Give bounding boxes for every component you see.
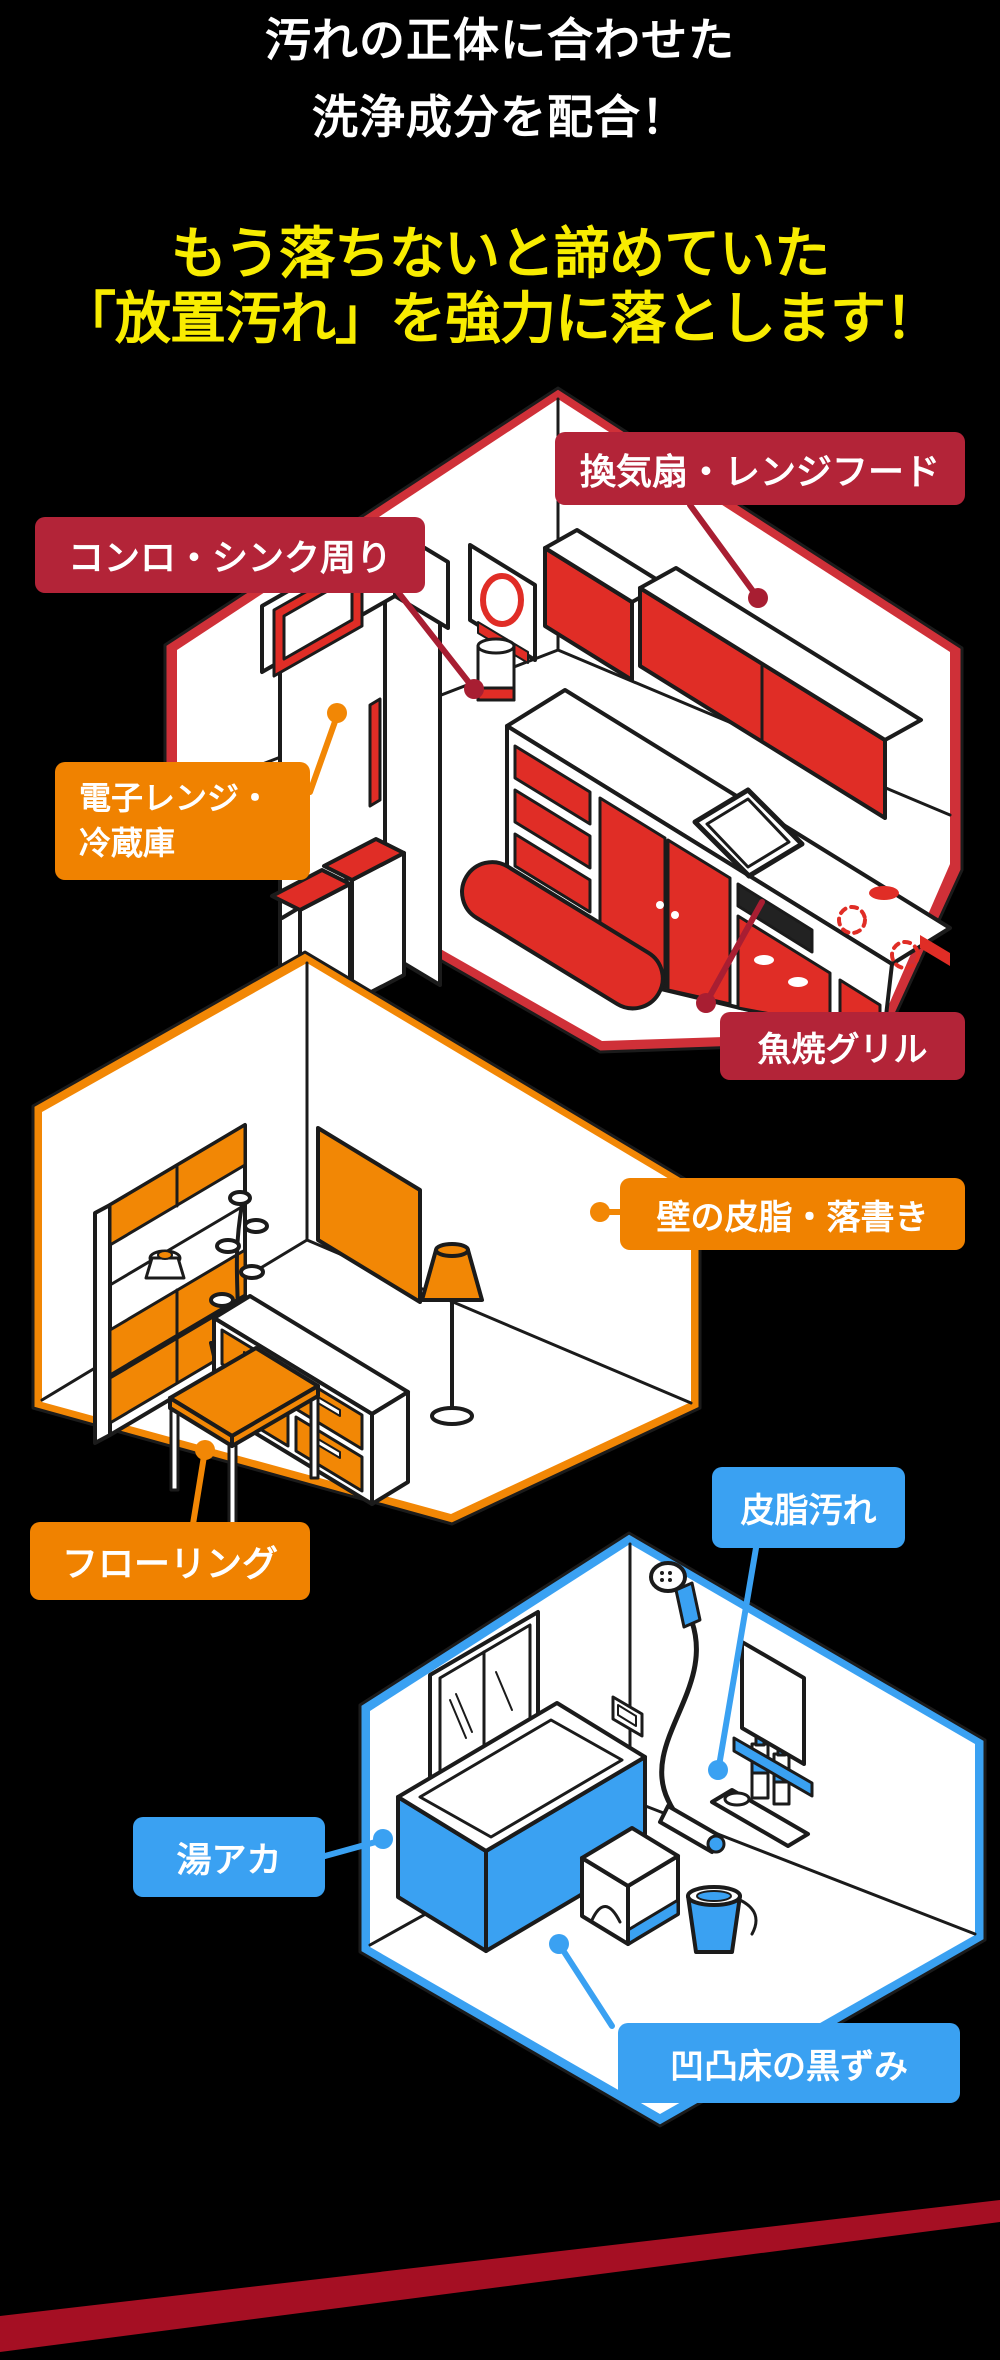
leader-stove-dot: [464, 679, 484, 699]
leader-fridge-dot: [327, 703, 347, 723]
callout-bathtub-scum: 湯アカ: [133, 1817, 325, 1897]
callout-microwave-fridge: 電子レンジ・ 冷蔵庫: [55, 762, 310, 880]
leader-yuaka-dot: [373, 1829, 393, 1849]
leader-uneven-dot: [549, 1934, 569, 1954]
callout-vent-fan-range-hood: 換気扇・レンジフード: [555, 432, 965, 505]
callout-wall-sebum-graffiti: 壁の皮脂・落書き: [620, 1178, 965, 1250]
callout-uneven-floor-stains: 凹凸床の黒ずみ: [618, 2023, 960, 2103]
callout-flooring: フローリング: [30, 1522, 310, 1600]
leader-wall-dot: [590, 1202, 610, 1222]
leader-sebum-dot: [708, 1760, 728, 1780]
callout-stove-sink-area: コンロ・シンク周り: [35, 517, 425, 593]
callout-fish-grill: 魚焼グリル: [720, 1012, 965, 1080]
callout-sebum-dirt: 皮脂汚れ: [712, 1467, 905, 1548]
infographic-canvas: 汚れの正体に合わせた 洗浄成分を配合！ もう落ちないと諦めていた 「放置汚れ」を…: [0, 0, 1000, 2360]
leader-vent-dot: [748, 588, 768, 608]
leader-floor-dot: [195, 1440, 215, 1460]
leader-floor: [193, 1450, 205, 1524]
bottom-ribbon: [0, 2200, 1000, 2352]
leader-grill-dot: [696, 993, 716, 1013]
